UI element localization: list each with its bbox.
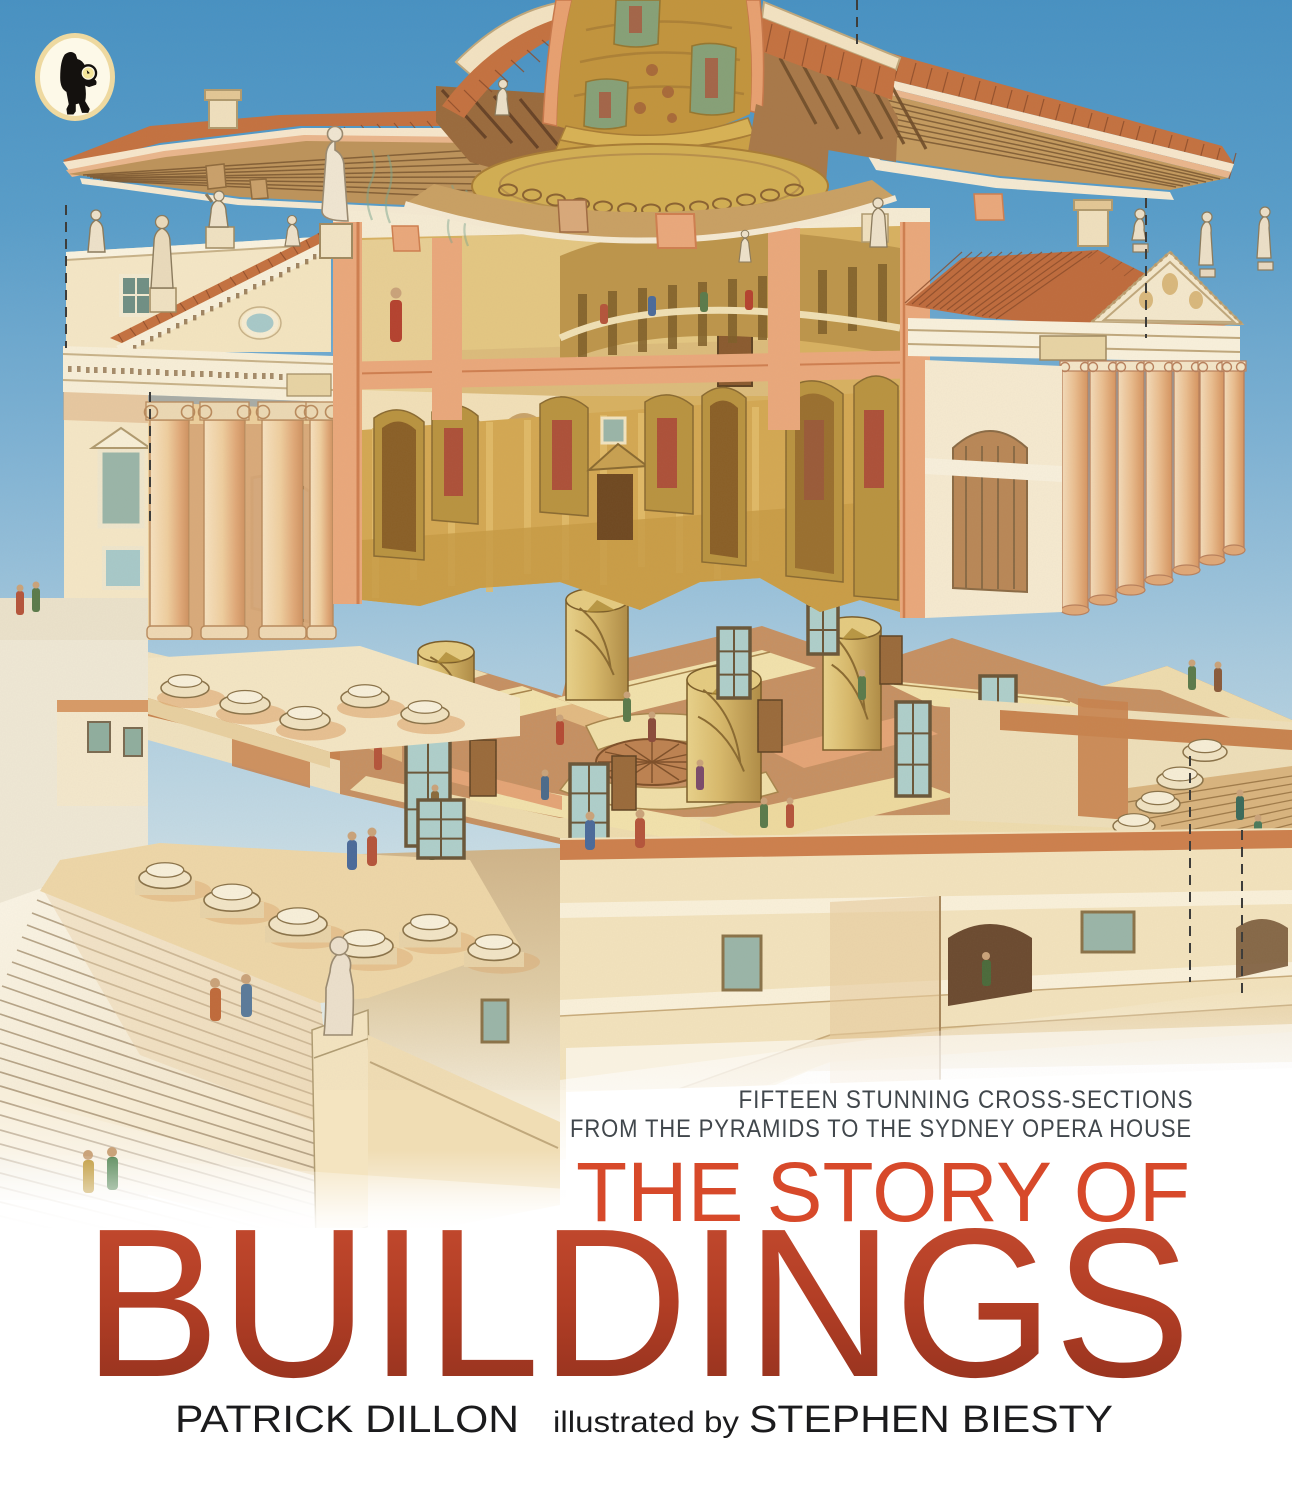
svg-text:FROM THE PYRAMIDS TO THE SYDNE: FROM THE PYRAMIDS TO THE SYDNEY OPERA HO…	[570, 1115, 1192, 1143]
svg-text:illustrated by: illustrated by	[553, 1406, 739, 1439]
svg-text:PATRICK DILLON: PATRICK DILLON	[175, 1399, 519, 1441]
svg-text:STEPHEN BIESTY: STEPHEN BIESTY	[749, 1399, 1113, 1441]
svg-text:BUILDINGS: BUILDINGS	[83, 1184, 1191, 1421]
svg-text:FIFTEEN STUNNING CROSS-SECTION: FIFTEEN STUNNING CROSS-SECTIONS	[739, 1086, 1194, 1114]
